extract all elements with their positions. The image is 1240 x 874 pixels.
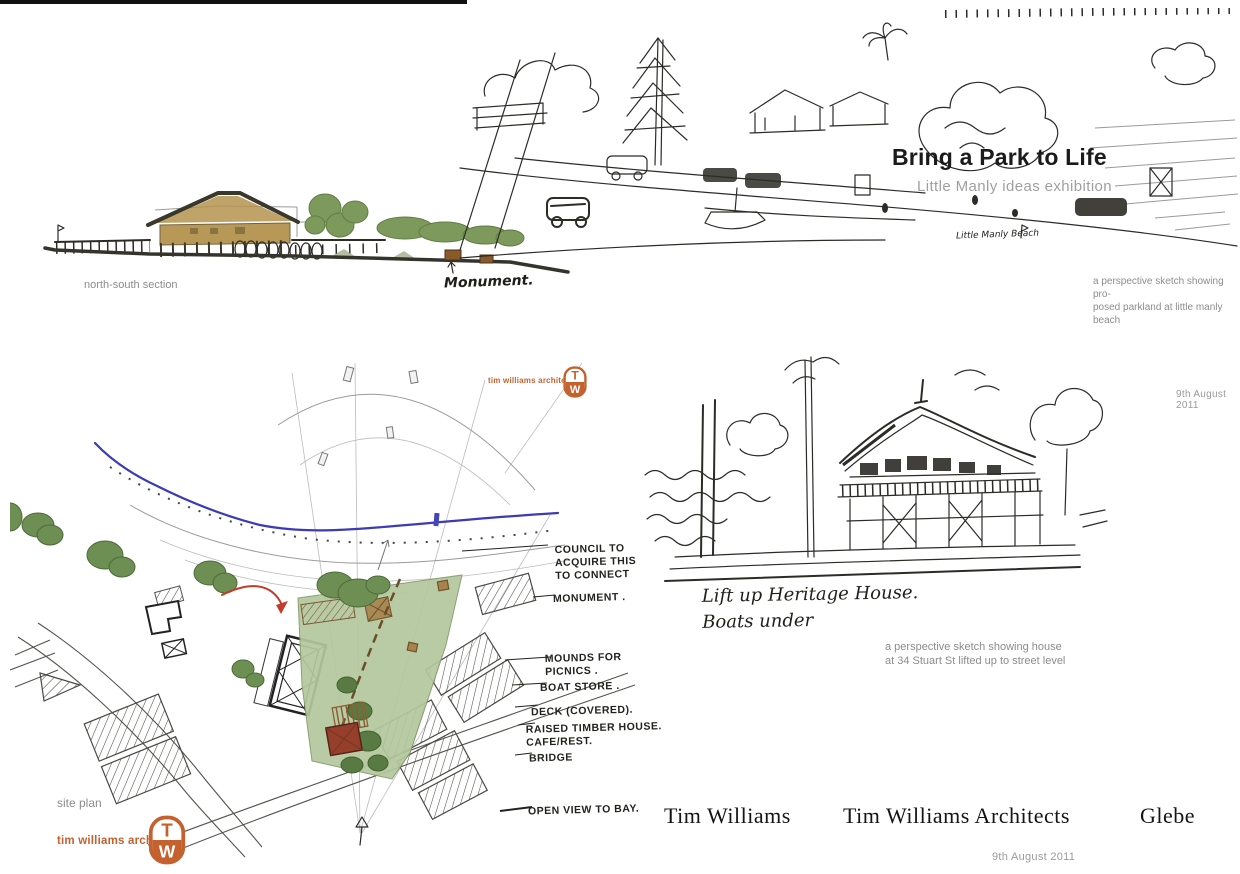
poster-subtitle: Little Manly ideas exhibition xyxy=(917,178,1112,195)
north-marker xyxy=(356,817,368,845)
label-boat-store: BOAT STORE . xyxy=(540,680,620,695)
balustrade xyxy=(842,485,1039,491)
palm-tree xyxy=(863,23,907,60)
footer-location: Glebe xyxy=(1140,803,1195,829)
tw-logo-icon: T W xyxy=(563,366,587,398)
svg-text:W: W xyxy=(570,384,581,396)
top-rule xyxy=(0,0,467,4)
parkland-perspective-sketch xyxy=(455,8,1240,273)
blue-marker xyxy=(433,513,439,526)
house-roof xyxy=(840,380,1035,471)
label-deck: DECK (COVERED). xyxy=(531,704,633,720)
perspective-caption: a perspective sketch showing pro- posed … xyxy=(1093,275,1240,327)
svg-text:W: W xyxy=(159,842,176,862)
stilts xyxy=(847,491,1043,550)
boat-symbols xyxy=(318,366,418,465)
house-annotation: Lift up Heritage House. Boats under xyxy=(702,580,919,636)
site-plan-caption: site plan xyxy=(57,796,102,810)
raised-timber-house xyxy=(326,722,362,755)
label-council: COUNCIL TO ACQUIRE THIS TO CONNECT xyxy=(555,542,637,583)
tw-logo-icon: T W xyxy=(148,815,186,865)
top-dash-row xyxy=(945,10,1230,14)
pine-tree xyxy=(623,38,687,165)
label-monument: MONUMENT . xyxy=(553,591,626,606)
label-bridge: BRIDGE xyxy=(529,751,573,765)
house-caption: a perspective sketch showing house at 34… xyxy=(885,640,1065,668)
date-bottom: 9th August 2011 xyxy=(992,851,1075,863)
svg-text:T: T xyxy=(571,369,579,383)
background-buildings xyxy=(473,61,599,130)
poster-title: Bring a Park to Life xyxy=(892,144,1107,171)
shaded-verandah xyxy=(860,456,1001,475)
label-mounds: MOUNDS FOR PICNICS . xyxy=(545,651,622,679)
site-plan-sketch xyxy=(10,355,640,860)
view-arrow xyxy=(378,540,389,570)
red-arrow xyxy=(222,586,288,614)
footer-firm: Tim Williams Architects xyxy=(843,803,1070,829)
ground xyxy=(665,545,1080,581)
frond-rows xyxy=(645,413,788,545)
svg-text:T: T xyxy=(161,819,173,840)
figure-marks xyxy=(882,195,1018,217)
date-top: 9th August 2011 xyxy=(1176,389,1240,411)
dotted-line xyxy=(110,467,555,543)
presentation-sheet: north-south section Monument. xyxy=(0,0,1240,874)
monument-annotation: Monument. xyxy=(444,272,534,291)
right-tree xyxy=(955,370,1107,527)
flag-pole xyxy=(785,357,839,557)
label-raised-house: RAISED TIMBER HOUSE. CAFE/REST. xyxy=(526,720,663,750)
section-caption: north-south section xyxy=(84,278,178,292)
left-posts xyxy=(701,400,715,557)
footer-name: Tim Williams xyxy=(664,803,791,829)
